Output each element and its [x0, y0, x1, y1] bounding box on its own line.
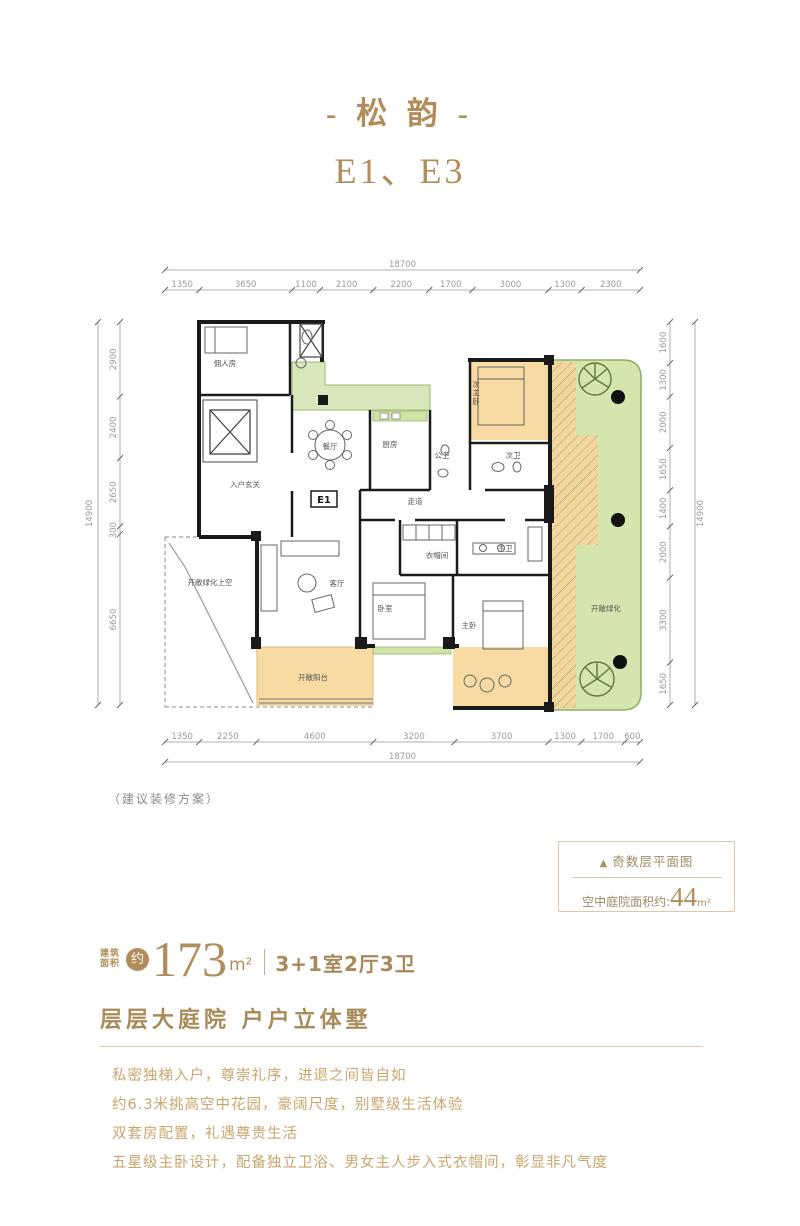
area-summary: 建筑 面积 约 173 m² 3+1室2厅3卫 [100, 936, 416, 982]
room-label: 厨房 [383, 439, 398, 449]
entry-garden-green [292, 362, 430, 421]
description-block: 私密独梯入户，尊崇礼序，进退之间皆自如约6.3米挑高空中花园，豪阔尺度，别墅级生… [112, 1062, 672, 1178]
room-label: 公卫 [435, 451, 450, 460]
slogan-underline [100, 1046, 703, 1047]
description-line: 约6.3米挑高空中花园，豪阔尺度，别墅级生活体验 [112, 1091, 672, 1120]
dimension-label: 1300 [554, 280, 576, 290]
room-label: 次主卧 [472, 379, 480, 406]
dimension-label: 1350 [171, 280, 193, 290]
dimension-label: 1100 [295, 280, 317, 290]
area-unit: m² [229, 955, 252, 975]
dimension-label: 600 [624, 732, 640, 742]
room-label: 客厅 [330, 578, 345, 588]
unit-subtitle: E1、E3 [0, 142, 800, 194]
room-label: 入户玄关 [230, 479, 260, 489]
elevator-shaft [203, 400, 257, 462]
room-label: 衣帽间 [426, 550, 449, 560]
dimension-label: 2200 [390, 280, 412, 290]
dimension-label: 1650 [659, 673, 669, 695]
dimension-label: 18700 [389, 752, 416, 762]
dimension-label: 2300 [600, 280, 622, 290]
dimension-label: 1700 [440, 280, 462, 290]
description-line: 私密独梯入户，尊崇礼序，进退之间皆自如 [112, 1062, 672, 1091]
dimension-label: 14900 [85, 500, 95, 527]
dimension-label: 2000 [659, 541, 669, 563]
dimension-label: 3300 [659, 609, 669, 631]
triangle-up-icon: ▲ [600, 858, 609, 869]
dimension-label: 18700 [389, 260, 416, 270]
secondary-master-fill [470, 360, 550, 440]
room-label: 次卫 [506, 450, 521, 460]
room-label: 开敞阳台 [298, 672, 328, 682]
room-label: 餐厅 [323, 442, 338, 451]
floor-type-row: ▲奇数层平面图 [559, 851, 734, 870]
dimension-label: 300 [109, 522, 119, 538]
unit-label: E1 [317, 495, 331, 506]
courtyard-value: 44 [670, 882, 697, 912]
dimension-label: 3650 [235, 280, 257, 290]
floor-type-badge: ▲奇数层平面图 空中庭院面积约:44m² [558, 841, 735, 912]
dimension-label: 1600 [659, 332, 669, 354]
dimension-label: 14900 [696, 500, 706, 527]
dimension-label: 4600 [304, 732, 326, 742]
room-layout: 3+1室2厅3卫 [275, 948, 415, 977]
description-line: 五星级主卧设计，配备独立卫浴、男女主人步入式衣帽间，彰显非凡气度 [112, 1149, 672, 1178]
unit-label-box: E1 [311, 491, 337, 507]
dimension-label: 2100 [336, 280, 358, 290]
area-value: 173 [152, 936, 227, 982]
floor-plan: E1 佣人房入户玄关餐厅厨房公卫走道次主卧次卫主卫衣帽间卧室主卧客厅开敞绿化上空… [85, 245, 725, 805]
slogan-heading: 层层大庭院 户户立体墅 [100, 1002, 372, 1034]
dimension-label: 1650 [659, 458, 669, 480]
room-label: 开敞绿化上空 [188, 577, 233, 587]
floor-plan-svg: E1 佣人房入户玄关餐厅厨房公卫走道次主卧次卫主卫衣帽间卧室主卧客厅开敞绿化上空… [85, 245, 725, 805]
area-label: 建筑 面积 [100, 949, 122, 969]
dimension-label: 1300 [659, 369, 669, 391]
courtyard-row: 空中庭院面积约:44m² [559, 882, 734, 913]
dimension-label: 3700 [491, 732, 513, 742]
dimension-label: 1700 [592, 732, 614, 742]
room-label: 开敞绿化 [591, 603, 621, 613]
room-label: 佣人房 [214, 358, 237, 368]
room-label: 走道 [408, 496, 423, 506]
dimension-label: 2000 [659, 411, 669, 433]
dimension-label: 2400 [109, 417, 119, 439]
room-label: 主卫 [498, 543, 513, 553]
room-label: 主卧 [462, 620, 477, 630]
plan-note: （建议装修方案） [108, 790, 220, 807]
approx-badge: 约 [126, 948, 149, 971]
dimension-label: 3000 [500, 280, 522, 290]
dimension-label: 1300 [554, 732, 576, 742]
courtyard-prefix: 空中庭院面积约: [582, 895, 670, 909]
dimension-label: 2250 [217, 732, 239, 742]
badge-divider [572, 877, 722, 878]
dimension-label: 6650 [109, 609, 119, 631]
dimension-label: 2650 [109, 481, 119, 503]
sky-garden-green [550, 360, 641, 710]
page-title: - 松 韵 - [0, 88, 800, 133]
courtyard-unit: m² [697, 898, 711, 909]
dimension-label: 2900 [109, 348, 119, 370]
bedroom-sill-green [373, 647, 451, 654]
dimension-label: 1400 [659, 498, 669, 520]
master-terrace-fill [453, 647, 550, 708]
room-label: 卧室 [378, 603, 393, 613]
dimension-label: 1350 [171, 732, 193, 742]
dimension-label: 3200 [403, 732, 425, 742]
description-line: 双套房配置，礼遇尊贵生活 [112, 1120, 672, 1149]
floor-type-label: 奇数层平面图 [612, 854, 693, 869]
flyer-page: - 松 韵 - E1、E3 [0, 0, 800, 1226]
area-divider [264, 949, 265, 975]
